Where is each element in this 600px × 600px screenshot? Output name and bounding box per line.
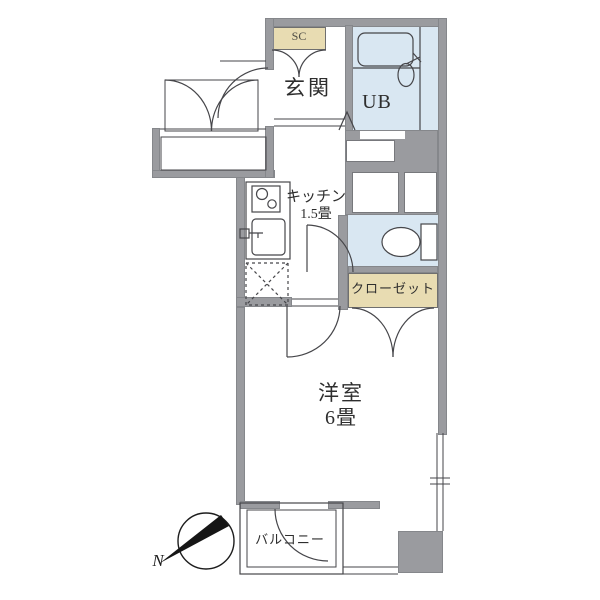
- label-western-room-size: 6畳: [325, 407, 357, 429]
- label-north: N: [146, 551, 170, 571]
- wall-line-bottom: [343, 567, 398, 574]
- toilet-icon: [382, 228, 420, 257]
- bath-faucet-icon: [398, 64, 414, 87]
- sc-door-arc: [272, 50, 299, 77]
- bathtub-icon: [358, 33, 413, 66]
- label-kitchen-size: 1.5畳: [300, 207, 332, 222]
- label-western-room-name: 洋室: [318, 381, 364, 405]
- entrance-door-arc: [218, 68, 268, 118]
- doorway-line: [292, 299, 338, 306]
- label-kitchen: キッチン 1.5畳: [266, 189, 366, 224]
- ub-door-mark: [339, 112, 355, 130]
- closet-door-arc: [393, 308, 434, 357]
- refrigerator-space: [246, 263, 288, 305]
- storage-box-inner: [161, 137, 266, 170]
- window-marker: [430, 478, 450, 484]
- sc-door-arc: [299, 50, 326, 77]
- closet-door-arc: [352, 308, 393, 357]
- step-line: [274, 119, 345, 126]
- floor-plan: SC 玄関 UB キッチン 1.5畳 クローゼット 洋室 6畳 バルコニー N: [0, 0, 600, 600]
- label-unit-bath: UB: [351, 91, 403, 114]
- label-closet: クローゼット: [348, 282, 438, 297]
- label-western-room: 洋室 6畳: [281, 381, 401, 430]
- toilet-tank-icon: [421, 224, 437, 260]
- label-entrance: 玄関: [268, 76, 348, 100]
- storage-door-arc: [212, 80, 259, 131]
- storage-door-arc: [165, 80, 212, 131]
- label-balcony: バルコニー: [240, 533, 340, 548]
- label-shoe-cabinet: SC: [272, 30, 326, 44]
- window-right: [437, 433, 443, 531]
- toilet-door-arc: [307, 225, 353, 272]
- room-door-arc: [287, 306, 340, 357]
- label-kitchen-name: キッチン: [286, 189, 346, 205]
